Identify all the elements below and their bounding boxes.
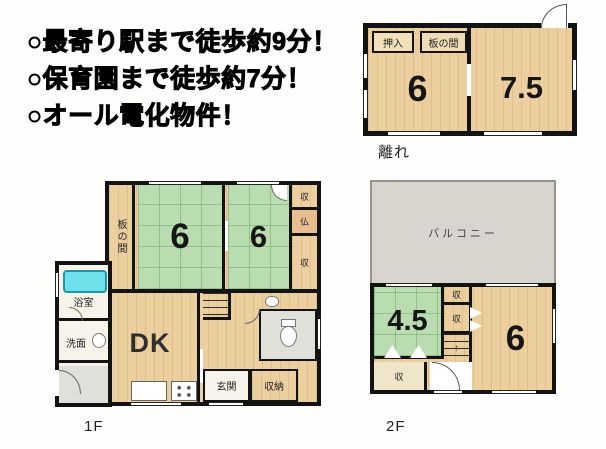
f1-tatami-room-b: 6 [228, 185, 289, 289]
f1-dk-label: DK [130, 328, 171, 359]
f2-balcony-label: バルコニー [428, 225, 498, 241]
f2-room6: 6 [475, 287, 556, 390]
f2-closet-mid-label: 収 [452, 312, 461, 325]
f1-closet-top-label: 収 [300, 190, 309, 203]
hanare-oshiire: 押入 [372, 31, 414, 53]
f1-window-top-1 [149, 181, 201, 185]
f1-washroom-label: 洗面 [66, 335, 86, 350]
floor2-plan: バルコニー 4.5 収 収 収 ↑ 6 [370, 180, 556, 394]
f1-entrance: 玄関 [203, 369, 250, 402]
f1-storage: 収納 [250, 369, 298, 402]
headline-notes: ○最寄り駅まで徒歩約9分！ ○保育園まで徒歩約7分！ ○オール電化物件！ [27, 24, 338, 135]
f1-bathroom-label-wrap: 浴室 [59, 293, 108, 309]
f1-block-tatami: 板の間 6 6 収 仏 収 [105, 181, 321, 293]
f1-closet-right: 収 [289, 236, 317, 289]
f1-rear-porch [59, 366, 108, 403]
hanare-itanoma-label: 板の間 [429, 35, 459, 50]
hanare-itanoma: 板の間 [420, 31, 467, 53]
f1-block-dk: DK 玄関 収納 [105, 289, 321, 406]
f1-bath-door-arc-icon [69, 307, 83, 321]
f1-butsudan: 仏 [289, 210, 317, 236]
floor1-plan: 板の間 6 6 収 仏 収 DK [55, 181, 321, 407]
note-station: ○最寄り駅まで徒歩約9分！ [27, 24, 338, 61]
f2-closet-mid: 収 [444, 305, 472, 334]
f1-itanoma-strip: 板の間 [109, 185, 135, 289]
f1-handwash-sink-icon [265, 296, 279, 307]
f1-washbasin-icon [92, 333, 106, 348]
hanare-plan: 押入 板の間 6 7.5 [363, 23, 577, 136]
f1-entrance-label: 玄関 [217, 378, 237, 393]
f1-bathtub-icon [63, 270, 107, 293]
f1-window-bath-left [55, 273, 59, 297]
f1-itanoma-label: 板の間 [113, 219, 128, 255]
f2-closet-top-label: 収 [452, 288, 461, 301]
f1-dk-label-wrap: DK [115, 323, 185, 363]
f2-closet-left-label: 収 [394, 370, 403, 383]
hanare-room75-label: 7.5 [500, 70, 543, 106]
note-all-electric: ○オール電化物件！ [27, 98, 338, 135]
hanare-window-left-2 [363, 90, 368, 118]
f2-tatami-room: 4.5 [374, 287, 444, 359]
f1-stairs [203, 293, 231, 320]
floor2-caption: 2F [386, 418, 406, 435]
f2-window-bottom-1 [434, 390, 462, 394]
f2-door-arc-icon [432, 362, 460, 390]
f1-tatami-room-a: 6 [138, 185, 225, 289]
f2-main-block: 4.5 収 収 収 ↑ 6 [370, 283, 556, 394]
hanare-room75: 7.5 [471, 64, 572, 112]
f1-block-bath: 浴室 洗面 [55, 261, 112, 407]
f1-washroom: 洗面 [59, 324, 108, 363]
f1-toilet-door-arc-icon [245, 309, 260, 324]
hanare-caption: 離れ [378, 141, 410, 162]
f2-closet-left: 収 [374, 362, 427, 390]
hanare-door-arc-icon [541, 4, 567, 28]
floorplan-flyer: ○最寄り駅まで徒歩約9分！ ○保育園まで徒歩約7分！ ○オール電化物件！ 押入 … [0, 0, 606, 449]
f2-window-right [552, 309, 556, 343]
f2-closet-top: 収 [444, 287, 472, 305]
f1-dk-room: DK [109, 293, 200, 402]
hanare-window-right [572, 60, 577, 90]
f1-kitchen-sink-icon [131, 381, 167, 401]
f1-toilet-room [259, 309, 317, 361]
f1-bathroom-label: 浴室 [74, 294, 94, 309]
f2-tatami-label: 4.5 [387, 305, 427, 338]
f2-balcony: バルコニー [370, 180, 556, 286]
f1-window-right [317, 319, 321, 349]
f2-window-top-1 [386, 283, 432, 287]
f1-rear-door-arc-icon [59, 370, 81, 394]
f1-butsudan-label: 仏 [300, 215, 309, 228]
f1-closet-top: 収 [289, 185, 317, 210]
f2-window-bottom-2 [492, 390, 536, 394]
f1-toilet-icon [280, 326, 297, 347]
note-nursery: ○保育園まで徒歩約7分！ [27, 61, 338, 98]
f1-tatami-b-label: 6 [250, 219, 267, 255]
hanare-room6: 6 [368, 66, 467, 112]
hanare-window-bottom-2 [484, 131, 542, 136]
hanare-window-left-1 [363, 54, 368, 78]
f2-landing [430, 362, 472, 390]
f2-stairs: ↑ [444, 334, 472, 362]
f1-rear-door-gap [55, 370, 59, 396]
hanare-window-bottom-1 [388, 131, 440, 136]
f1-entrance-door-gap [209, 402, 243, 406]
hanare-room6-label: 6 [407, 68, 427, 110]
floor1-caption: 1F [84, 418, 104, 435]
f1-bathroom: 浴室 [59, 265, 108, 321]
f2-window-top-2 [486, 283, 538, 287]
f2-stairs-arrow-icon: ↑ [454, 343, 459, 354]
f1-stove-icon [171, 381, 197, 401]
f2-room6-label: 6 [506, 319, 525, 359]
f1-tatami-a-label: 6 [170, 217, 189, 257]
f1-storage-label: 収納 [264, 378, 284, 393]
f1-closet-right-label: 収 [300, 256, 309, 269]
f1-washroom-label-wrap: 洗面 [59, 334, 93, 350]
f1-window-bottom-kitchen [131, 402, 181, 406]
hanare-oshiire-label: 押入 [383, 35, 403, 50]
